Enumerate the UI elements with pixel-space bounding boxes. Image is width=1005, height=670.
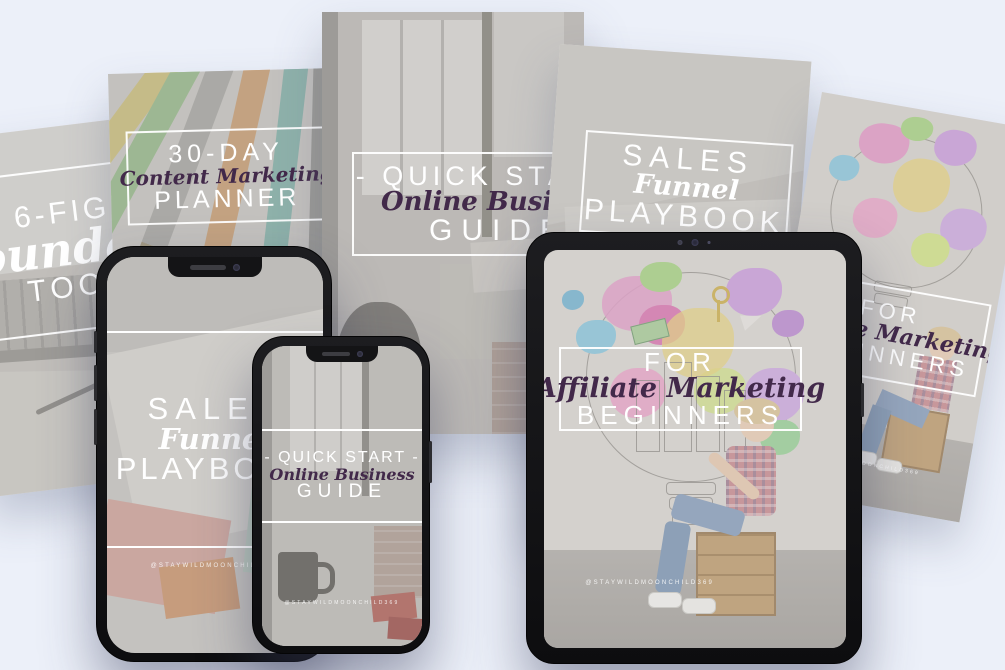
volume-up-button (94, 365, 97, 401)
screen-title-script: Affiliate Marketing (544, 376, 825, 402)
power-button (429, 441, 432, 483)
cover-title-bottom: PLANNER (154, 184, 301, 214)
camera-icon (357, 351, 363, 357)
screen-title-top: FOR (644, 349, 717, 376)
title-band-guide: - QUICK START - Online Business GUIDE (262, 429, 422, 523)
screen-title-script: Online Business (269, 467, 414, 482)
speaker-icon (322, 352, 350, 356)
camera-icon (233, 264, 240, 271)
tablet-affiliate-marketing-beginners: FOR Affiliate Marketing BEGINNERS @STAYW… (526, 232, 862, 664)
brand-handle: @STAYWILDMOONCHILD369 (262, 600, 422, 606)
title-box-planner: 30-DAY Content Marketing PLANNER (126, 126, 328, 225)
title-box-playbook: SALES Funnel PLAYBOOK (579, 130, 794, 246)
volume-down-button (94, 409, 97, 445)
tablet-screen: FOR Affiliate Marketing BEGINNERS @STAYW… (544, 250, 846, 648)
brand-handle: @STAYWILDMOONCHILD369 (544, 580, 755, 586)
phone-notch (168, 257, 262, 277)
camera-dot-icon (678, 240, 683, 245)
mute-switch (94, 331, 97, 353)
speaker-icon (190, 265, 226, 270)
screen-title-bottom: BEGINNERS (577, 402, 784, 429)
tablet-camera (678, 239, 711, 246)
title-box-beginners: FOR Affiliate Marketing BEGINNERS (559, 347, 802, 431)
camera-icon (692, 239, 699, 246)
phone-screen: - QUICK START - Online Business GUIDE @S… (262, 346, 422, 646)
phone-notch (306, 346, 378, 362)
volume-button (861, 383, 864, 417)
sensor-dot-icon (708, 241, 711, 244)
product-mockup-scene: 6-FIGURE Foundations TOOLKIT MARKETING P… (0, 0, 1005, 670)
screen-title-bottom: GUIDE (297, 482, 387, 502)
phone-quick-start-guide: - QUICK START - Online Business GUIDE @S… (252, 336, 430, 654)
